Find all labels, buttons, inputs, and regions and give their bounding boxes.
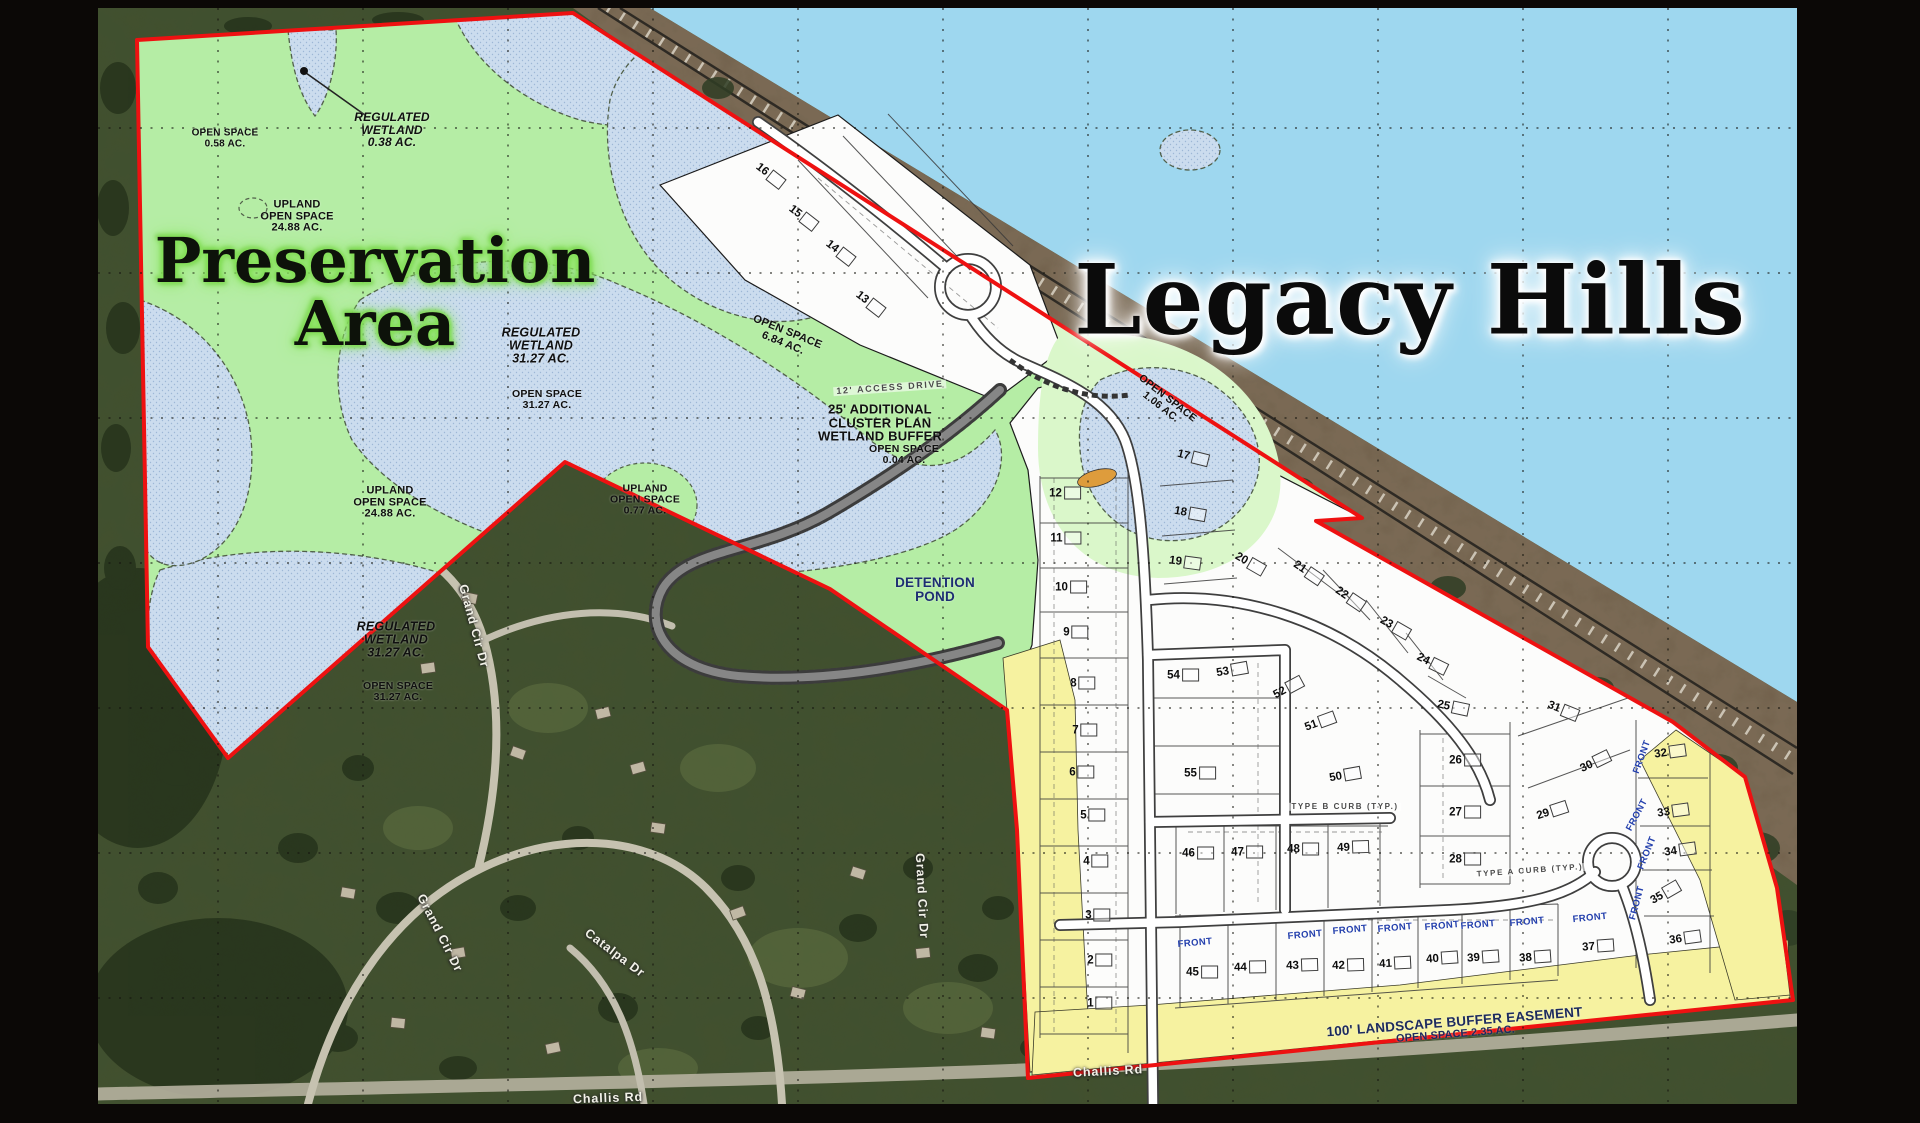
lot-footprint xyxy=(1668,743,1687,758)
area-label-cluster-wetland-buffer: 25' ADDITIONALCLUSTER PLANWETLAND BUFFER xyxy=(818,403,942,444)
lot-number-27: 27 xyxy=(1449,806,1462,818)
lot-footprint xyxy=(1678,841,1697,856)
lot-number-6: 6 xyxy=(1069,766,1075,778)
lot-footprint xyxy=(1596,938,1614,952)
area-label-cluster-open-space-0-04: OPEN SPACE0.04 AC. xyxy=(869,444,939,466)
lot-number-10: 10 xyxy=(1055,581,1068,593)
lot-number-38: 38 xyxy=(1519,951,1533,964)
area-label-type-b-curb: TYPE B CURB (TYP.) xyxy=(1288,803,1401,811)
lot-footprint xyxy=(1347,958,1364,972)
lot-number-41: 41 xyxy=(1379,957,1392,970)
lot-footprint xyxy=(1078,766,1095,779)
lot-number-42: 42 xyxy=(1332,959,1345,971)
legacy-hills-title: Legacy Hills xyxy=(1074,244,1746,357)
lot-footprint xyxy=(1481,949,1499,963)
lot-number-53: 53 xyxy=(1215,665,1230,679)
street-label-challis-rd-west: Challis Rd xyxy=(573,1090,644,1104)
lot-footprint xyxy=(1188,506,1207,522)
lot-footprint xyxy=(1671,802,1690,817)
lot-number-49: 49 xyxy=(1337,841,1350,853)
lot-footprint xyxy=(1199,767,1216,780)
lot-number-33: 33 xyxy=(1656,805,1670,819)
site-plan-map: OPEN SPACE0.58 AC.REGULATEDWETLAND0.38 A… xyxy=(98,8,1797,1104)
lot-3: 3 xyxy=(1085,909,1110,922)
area-label-detention-pond: DETENTIONPOND xyxy=(895,576,975,604)
area-label-upland-open-space-24-88-south: UPLANDOPEN SPACE24.88 AC. xyxy=(353,486,426,521)
lot-footprint xyxy=(1081,724,1098,737)
lot-2: 2 xyxy=(1087,954,1112,967)
lot-8: 8 xyxy=(1070,677,1095,690)
map-artwork xyxy=(98,8,1797,1104)
lot-number-36: 36 xyxy=(1668,932,1682,946)
lot-43: 43 xyxy=(1286,958,1318,972)
lot-number-28: 28 xyxy=(1449,853,1462,865)
wetland-pocket-ne xyxy=(1160,130,1220,170)
lot-footprint xyxy=(1064,487,1081,500)
lot-number-45: 45 xyxy=(1186,966,1199,978)
lot-number-47: 47 xyxy=(1231,846,1244,858)
lot-number-50: 50 xyxy=(1328,770,1343,784)
area-label-open-space-31-27-mid: OPEN SPACE31.27 AC. xyxy=(512,389,582,411)
lot-45: 45 xyxy=(1186,966,1218,979)
area-label-open-space-31-27-south: OPEN SPACE31.27 AC. xyxy=(363,681,433,703)
lot-footprint xyxy=(1182,669,1199,682)
lot-number-8: 8 xyxy=(1070,677,1076,689)
lot-number-43: 43 xyxy=(1286,959,1299,971)
lot-number-46: 46 xyxy=(1182,847,1195,859)
lot-footprint xyxy=(1096,954,1113,967)
lot-footprint xyxy=(1464,806,1481,819)
area-label-regulated-wetland-0-38: REGULATEDWETLAND0.38 AC. xyxy=(354,111,430,149)
lot-number-1: 1 xyxy=(1087,997,1093,1009)
lot-7: 7 xyxy=(1072,724,1097,737)
lot-5: 5 xyxy=(1080,809,1105,822)
lot-1: 1 xyxy=(1087,997,1112,1010)
lot-6: 6 xyxy=(1069,766,1094,779)
lot-footprint xyxy=(1092,855,1109,868)
lot-footprint xyxy=(1197,847,1214,860)
lot-footprint xyxy=(1352,840,1369,854)
lot-55: 55 xyxy=(1184,767,1216,780)
lot-number-25: 25 xyxy=(1436,698,1451,712)
lot-footprint xyxy=(1249,960,1266,973)
lot-number-48: 48 xyxy=(1287,843,1300,855)
lot-number-9: 9 xyxy=(1063,626,1069,638)
lot-47: 47 xyxy=(1231,846,1263,859)
lot-footprint xyxy=(1464,754,1481,767)
lot-footprint xyxy=(1302,843,1319,856)
area-label-open-space-0-58: OPEN SPACE0.58 AC. xyxy=(192,129,259,150)
lot-number-11: 11 xyxy=(1050,532,1062,544)
lot-number-32: 32 xyxy=(1653,746,1667,760)
lot-number-54: 54 xyxy=(1167,669,1180,681)
lot-37: 37 xyxy=(1582,938,1615,953)
lot-4: 4 xyxy=(1083,855,1108,868)
lot-number-3: 3 xyxy=(1085,909,1091,921)
lot-40: 40 xyxy=(1426,950,1459,965)
lot-number-4: 4 xyxy=(1083,855,1089,867)
lot-number-44: 44 xyxy=(1234,961,1247,973)
lot-12: 12 xyxy=(1049,487,1081,500)
lot-footprint xyxy=(1246,846,1263,859)
lot-number-19: 19 xyxy=(1168,554,1182,568)
lot-footprint xyxy=(1065,532,1082,545)
lot-10: 10 xyxy=(1055,581,1087,594)
lot-27: 27 xyxy=(1449,806,1481,819)
area-label-regulated-wetland-31-27-south: REGULATEDWETLAND31.27 AC. xyxy=(357,620,436,659)
lot-number-5: 5 xyxy=(1080,809,1086,821)
lot-48: 48 xyxy=(1287,843,1319,856)
lot-54: 54 xyxy=(1167,669,1199,682)
lot-number-17: 17 xyxy=(1176,447,1191,462)
lot-42: 42 xyxy=(1332,958,1364,972)
lot-footprint xyxy=(1070,581,1087,594)
lot-footprint xyxy=(1201,966,1218,979)
lot-number-34: 34 xyxy=(1663,844,1677,858)
framed-aerial-site-plan: OPEN SPACE0.58 AC.REGULATEDWETLAND0.38 A… xyxy=(0,0,1920,1123)
lot-44: 44 xyxy=(1234,960,1266,974)
lot-41: 41 xyxy=(1379,956,1411,971)
lot-footprint xyxy=(1183,555,1202,570)
lot-9: 9 xyxy=(1063,626,1088,639)
lot-number-39: 39 xyxy=(1467,951,1481,964)
lot-footprint xyxy=(1072,626,1089,639)
lot-number-37: 37 xyxy=(1582,940,1596,953)
lot-footprint xyxy=(1089,809,1106,822)
lot-footprint xyxy=(1301,958,1318,972)
lot-footprint xyxy=(1079,677,1096,690)
lot-footprint xyxy=(1683,929,1702,944)
lot-number-18: 18 xyxy=(1173,504,1188,518)
lot-footprint xyxy=(1440,950,1458,964)
lot-number-12: 12 xyxy=(1049,487,1062,499)
wetland-leader-dot xyxy=(300,67,308,75)
lot-number-26: 26 xyxy=(1449,754,1462,766)
lot-number-55: 55 xyxy=(1184,767,1197,779)
lot-11: 11 xyxy=(1050,532,1081,545)
preservation-area-title: Preservation Area xyxy=(155,229,596,355)
lot-26: 26 xyxy=(1449,754,1481,767)
lot-footprint xyxy=(1533,949,1551,963)
lot-footprint xyxy=(1094,909,1111,922)
lot-number-40: 40 xyxy=(1426,952,1440,965)
area-label-upland-open-space-0-77: UPLANDOPEN SPACE0.77 AC. xyxy=(610,483,680,516)
lot-46: 46 xyxy=(1182,847,1214,860)
lot-footprint xyxy=(1464,853,1481,866)
lot-38: 38 xyxy=(1519,949,1552,964)
lot-49: 49 xyxy=(1337,840,1369,854)
lot-39: 39 xyxy=(1467,949,1500,964)
lot-footprint xyxy=(1394,956,1412,970)
lot-number-2: 2 xyxy=(1087,954,1093,966)
lot-28: 28 xyxy=(1449,853,1481,866)
lot-number-7: 7 xyxy=(1072,724,1078,736)
lot-footprint xyxy=(1096,997,1113,1010)
